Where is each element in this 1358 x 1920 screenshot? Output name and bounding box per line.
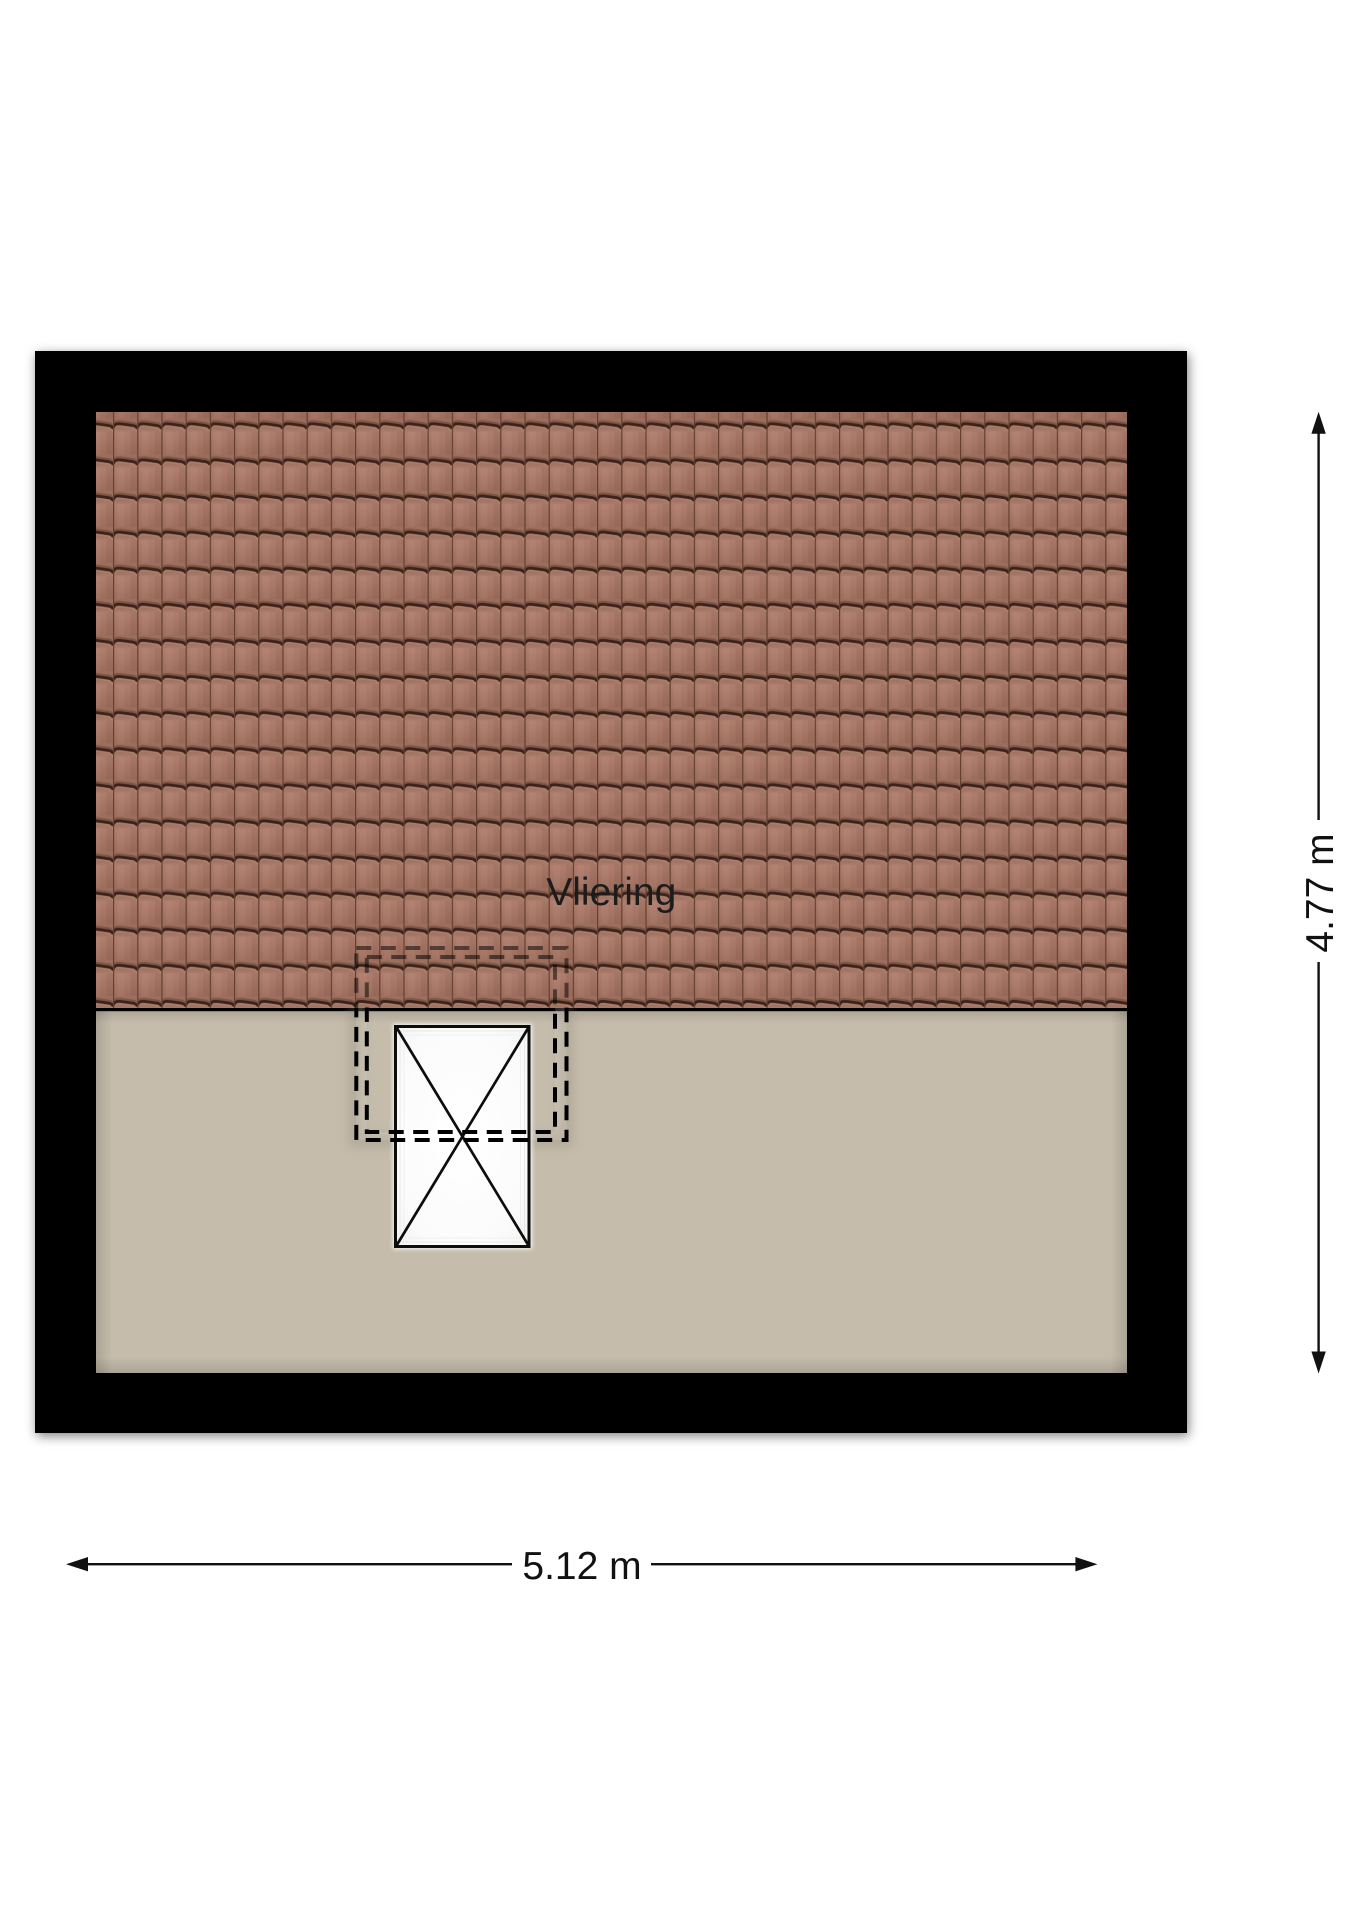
svg-text:4.77 m: 4.77 m [1299,833,1342,952]
svg-text:Vliering: Vliering [546,871,676,914]
svg-text:5.12 m: 5.12 m [522,1545,641,1588]
